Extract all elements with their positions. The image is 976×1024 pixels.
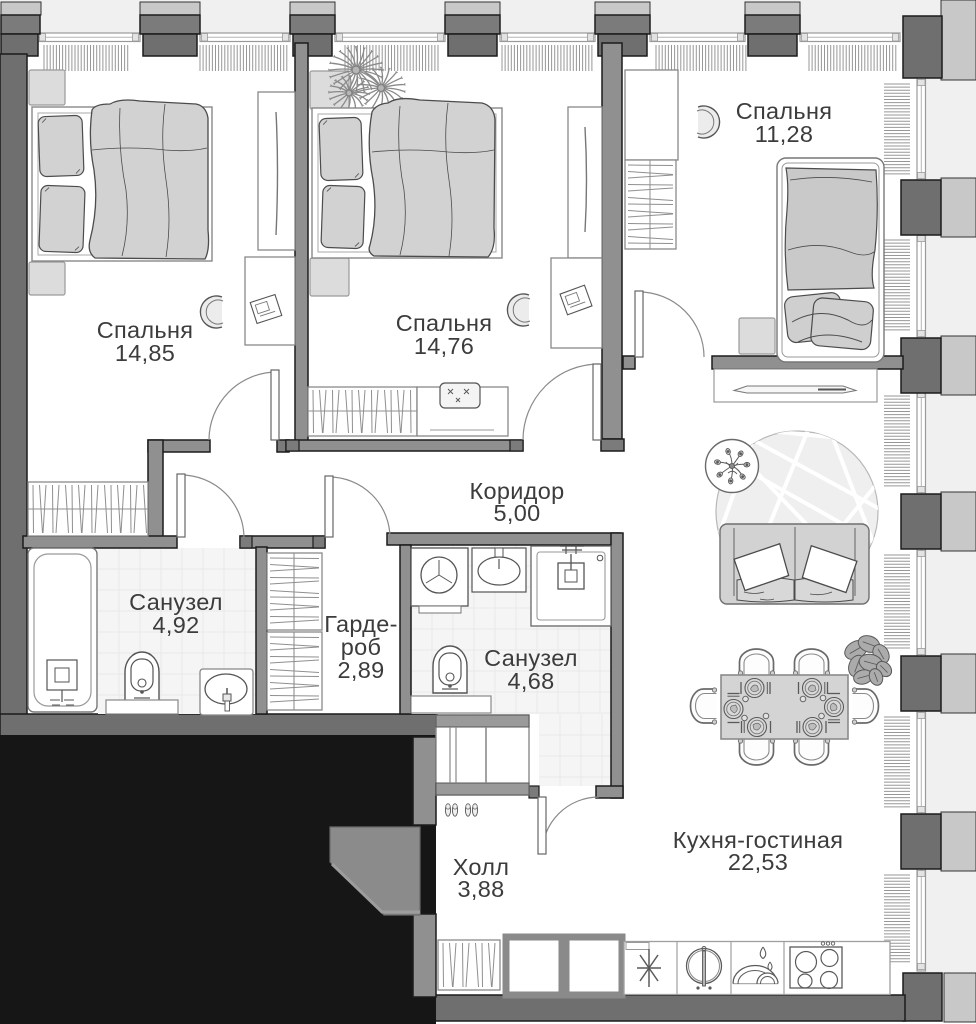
- svg-text:14,76: 14,76: [414, 333, 474, 359]
- svg-text:11,28: 11,28: [755, 121, 814, 147]
- svg-text:3,88: 3,88: [458, 876, 505, 902]
- svg-text:4,92: 4,92: [153, 612, 200, 638]
- svg-text:4,68: 4,68: [508, 668, 555, 694]
- svg-text:14,85: 14,85: [115, 340, 175, 366]
- svg-text:2,89: 2,89: [338, 657, 385, 683]
- svg-text:5,00: 5,00: [494, 500, 541, 526]
- svg-text:22,53: 22,53: [728, 849, 788, 875]
